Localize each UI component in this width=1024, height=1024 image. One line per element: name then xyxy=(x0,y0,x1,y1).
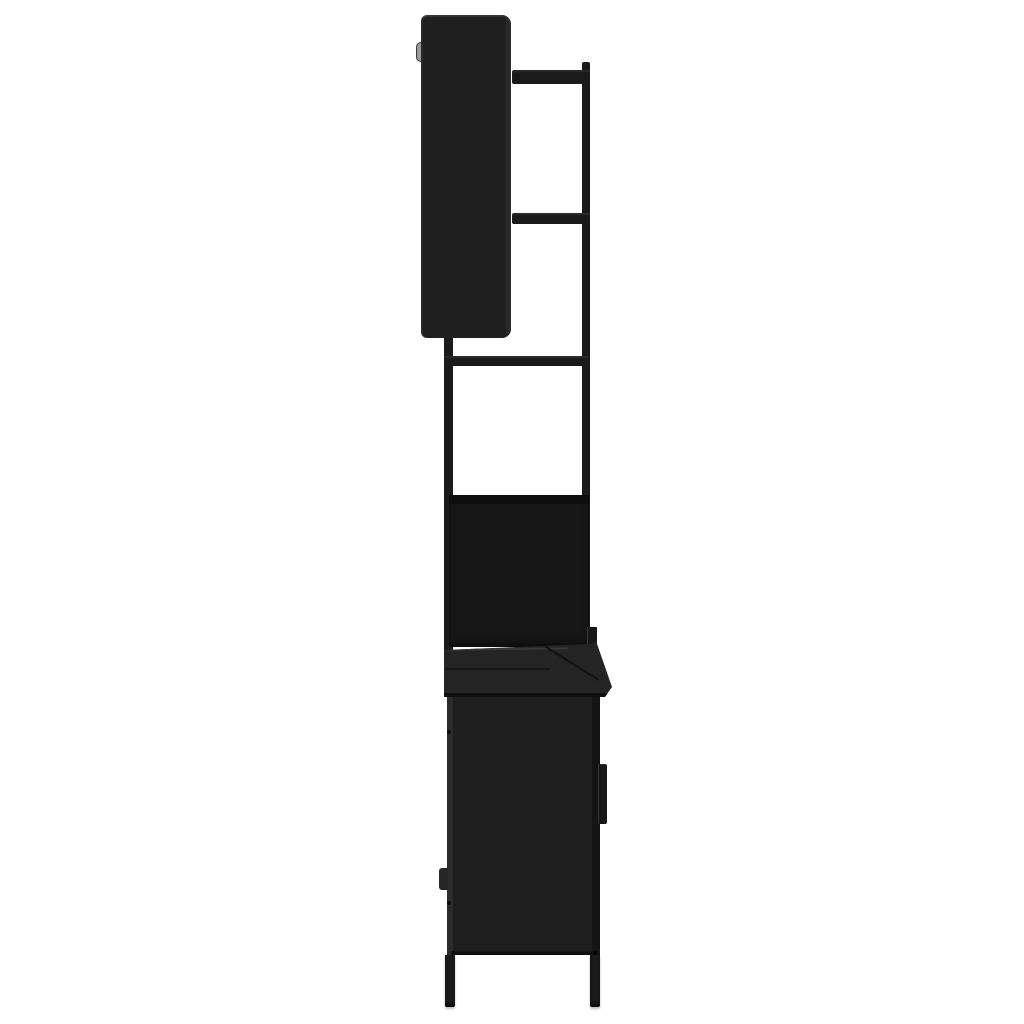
countertop-seam-line xyxy=(544,645,599,681)
base-cabinet-right-edge xyxy=(592,697,600,955)
screw-dot xyxy=(451,951,455,955)
tower-back-panel xyxy=(449,495,589,647)
countertop-fold-line xyxy=(446,668,550,670)
door-hinge xyxy=(439,868,448,890)
base-cabinet-body xyxy=(447,697,600,955)
screw-dot xyxy=(447,901,451,905)
screw-dot xyxy=(447,730,451,734)
leg-left xyxy=(445,955,455,1007)
leg-right xyxy=(590,955,600,1007)
door-handle xyxy=(598,764,607,824)
tower-cross-bar xyxy=(444,356,588,366)
screw-dot xyxy=(593,951,597,955)
base-cabinet-left-edge xyxy=(447,697,453,955)
frame-bar-middle xyxy=(512,213,590,224)
tower-panel-shadow-line xyxy=(449,495,589,504)
product-photo-black-bathroom-furniture-set xyxy=(0,0,1024,1024)
frame-bar-top xyxy=(512,70,590,84)
countertop-slab xyxy=(444,641,612,697)
mirror-cabinet-side-panel xyxy=(506,19,511,334)
countertop-bottom-shadow xyxy=(444,693,612,697)
mirror-cabinet xyxy=(421,15,511,338)
